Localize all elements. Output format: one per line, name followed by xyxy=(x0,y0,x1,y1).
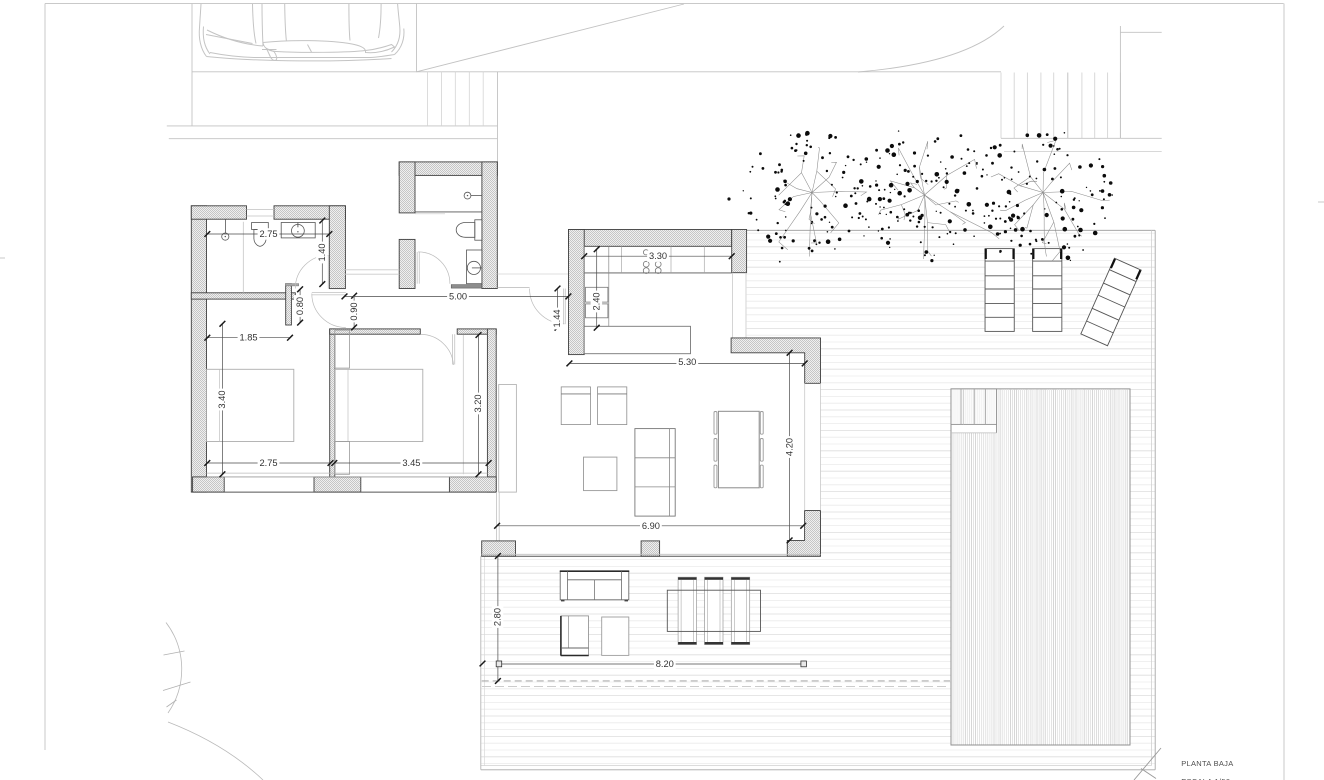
svg-text:5.00: 5.00 xyxy=(449,291,467,301)
svg-text:0.90: 0.90 xyxy=(349,302,359,320)
svg-text:3.40: 3.40 xyxy=(217,390,227,408)
svg-text:3.30: 3.30 xyxy=(649,251,667,261)
svg-text:3.45: 3.45 xyxy=(402,458,420,468)
svg-text:1.85: 1.85 xyxy=(239,333,257,343)
svg-text:2.75: 2.75 xyxy=(259,458,277,468)
svg-text:2.40: 2.40 xyxy=(591,292,601,310)
svg-text:4.20: 4.20 xyxy=(784,438,794,456)
svg-text:2.75: 2.75 xyxy=(259,229,277,239)
svg-text:1.40: 1.40 xyxy=(317,243,327,261)
svg-text:1.44: 1.44 xyxy=(552,309,562,327)
svg-text:6.90: 6.90 xyxy=(642,521,660,531)
svg-text:8.20: 8.20 xyxy=(656,659,674,669)
svg-text:5.30: 5.30 xyxy=(678,357,696,367)
svg-text:0.80: 0.80 xyxy=(295,297,305,315)
svg-text:PLANTA BAJA: PLANTA BAJA xyxy=(1181,759,1233,768)
svg-text:2.80: 2.80 xyxy=(493,608,503,626)
svg-text:3.20: 3.20 xyxy=(473,394,483,412)
